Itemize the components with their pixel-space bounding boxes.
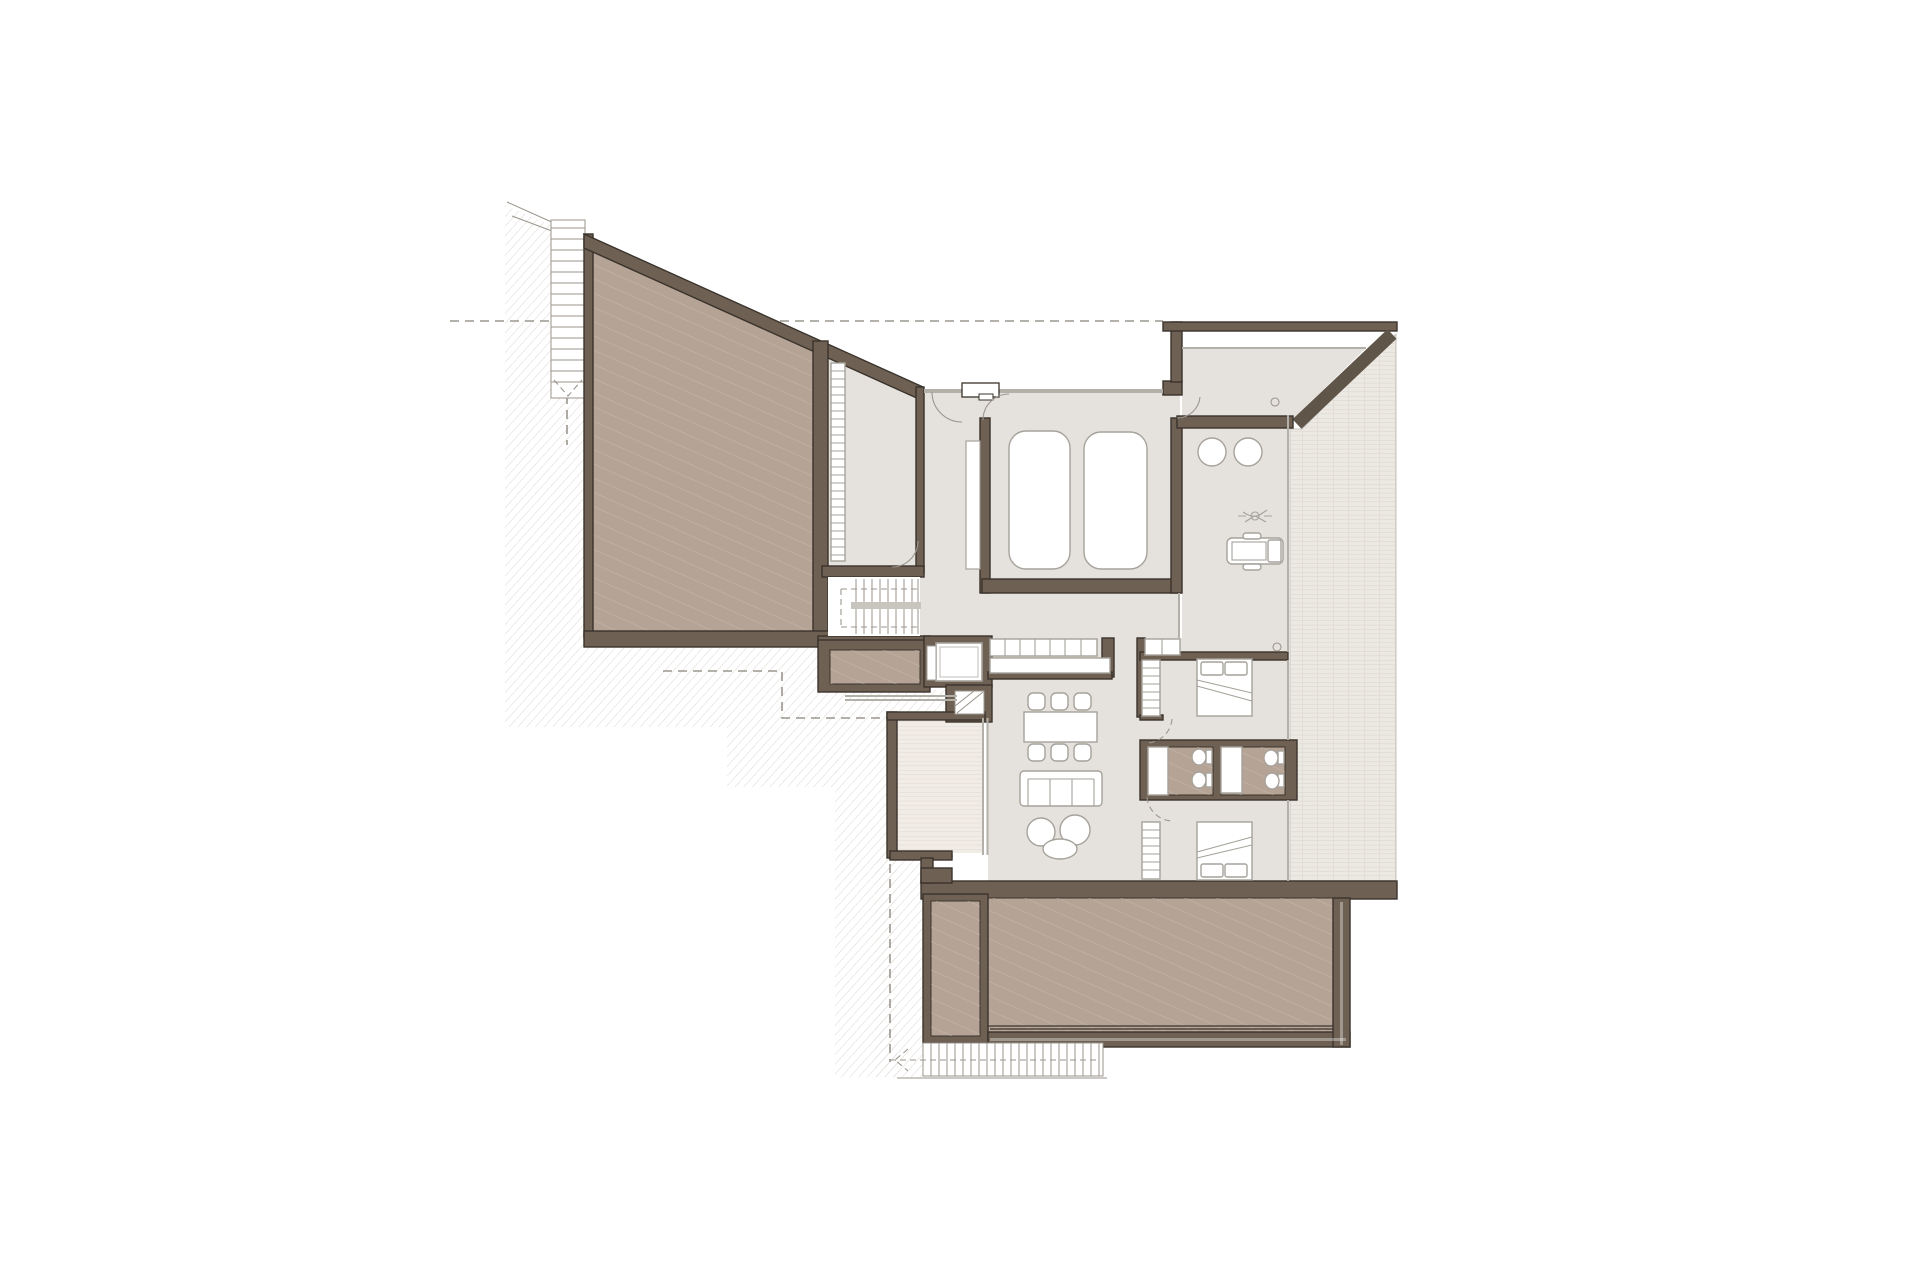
wash-basin-2 — [1234, 438, 1262, 466]
dining-table-set — [1024, 693, 1097, 761]
elevator-door — [927, 646, 936, 680]
garage-west-wall — [980, 418, 990, 593]
shower-2 — [1221, 747, 1242, 793]
wash-basin-1 — [1198, 438, 1226, 466]
cellar-stair-box — [830, 650, 920, 684]
bed-2 — [1197, 822, 1252, 880]
kitchen-counter — [990, 658, 1110, 673]
deck-corner-step — [921, 868, 952, 883]
garage-window-band — [924, 389, 1163, 393]
toilet-1 — [1192, 749, 1212, 765]
west-wall — [584, 234, 593, 638]
mudroom-south-wall — [822, 566, 924, 577]
porch-skylight-band — [1182, 332, 1388, 348]
kitchen — [990, 639, 1110, 673]
interior-stair — [828, 577, 921, 636]
exercise-bench — [1227, 533, 1283, 570]
exterior-stair-northwest — [551, 220, 585, 398]
shower-1 — [1148, 747, 1168, 795]
elevator — [927, 643, 982, 681]
south-wall — [921, 881, 1397, 899]
exterior-stair-south — [890, 1043, 1107, 1078]
entry-door-handle — [979, 394, 993, 400]
bidet-2 — [1265, 773, 1284, 789]
floor-plan-canvas — [0, 0, 1920, 1280]
north-wall — [1163, 322, 1397, 331]
trap-south-wall — [584, 631, 830, 647]
deck-west-wall — [887, 712, 897, 858]
light-shaft — [955, 691, 984, 714]
west-deck-terrace — [897, 720, 983, 853]
floor-plan-drawing — [0, 0, 1920, 1280]
sofa — [1020, 771, 1102, 806]
fitness-wardrobe — [1145, 639, 1180, 655]
bed-1 — [1197, 659, 1252, 716]
garage-south-wall — [982, 579, 1180, 593]
south-terrace — [923, 894, 1350, 1047]
wardrobe-strip-2 — [1142, 822, 1160, 879]
porch-south-wall — [1177, 416, 1293, 428]
car-1 — [1009, 431, 1070, 569]
mudroom-shelf — [831, 363, 845, 561]
toilet-2 — [1264, 750, 1284, 766]
stair-handrail — [851, 602, 921, 609]
garage-east-wall — [1171, 418, 1182, 593]
garage-side-opening — [966, 441, 980, 569]
car-2 — [1084, 432, 1147, 569]
wardrobe-strip-1 — [1142, 660, 1160, 716]
divider-wall — [813, 341, 828, 640]
sloped-roof-room — [593, 248, 813, 631]
porch-west-stub — [1163, 381, 1182, 395]
bidet-1 — [1192, 772, 1212, 788]
west-window — [983, 718, 988, 855]
